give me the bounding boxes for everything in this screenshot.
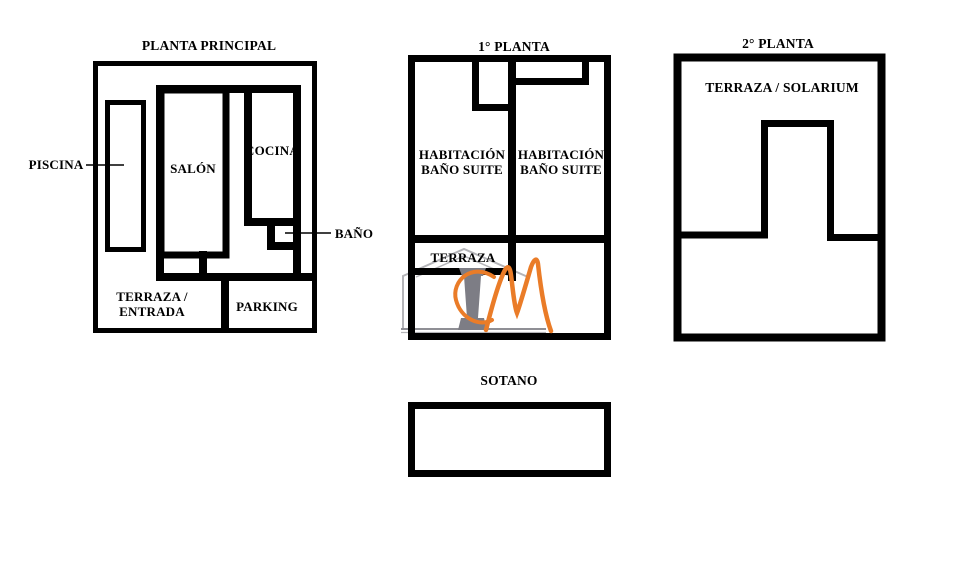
plan-title-primera-planta: 1° PLANTA bbox=[478, 39, 550, 54]
piscina-pool-outline bbox=[108, 103, 144, 250]
cocina-label: COCINA bbox=[245, 143, 299, 158]
plan-title-segunda-planta: 2° PLANTA bbox=[742, 36, 814, 51]
plan-segunda-planta: 2° PLANTA TERRAZA / SOLARIUM bbox=[674, 36, 886, 338]
piscina-label: PISCINA bbox=[29, 157, 84, 172]
parking-label: PARKING bbox=[236, 299, 298, 314]
habitacion-left-label-line1: HABITACIÓN bbox=[419, 147, 506, 162]
sotano-outer-wall bbox=[412, 406, 608, 474]
terraza-entrada-label-line2: ENTRADA bbox=[119, 304, 185, 319]
floor-plans-canvas: PLANTA PRINCIPAL PISCINA SALÓN COCINA BA… bbox=[0, 0, 954, 576]
habitacion-right-label-line2: BAÑO SUITE bbox=[520, 162, 602, 177]
habitacion-right-label-line1: HABITACIÓN bbox=[518, 147, 605, 162]
plan-title-planta-principal: PLANTA PRINCIPAL bbox=[142, 38, 276, 53]
segunda-planta-outer-wall bbox=[678, 58, 882, 338]
plan-sotano: SOTANO bbox=[412, 373, 608, 474]
bano-label: BAÑO bbox=[335, 226, 373, 241]
habitacion-left-label-line2: BAÑO SUITE bbox=[421, 162, 503, 177]
plan-planta-principal: PLANTA PRINCIPAL PISCINA SALÓN COCINA BA… bbox=[29, 38, 374, 331]
cm-logo-watermark bbox=[455, 260, 551, 331]
terraza-label: TERRAZA bbox=[431, 250, 496, 265]
salon-label: SALÓN bbox=[170, 161, 216, 176]
terraza-solarium-label: TERRAZA / SOLARIUM bbox=[705, 80, 859, 95]
plan-title-sotano: SOTANO bbox=[480, 373, 537, 388]
plan-primera-planta: 1° PLANTA HABITACIÓN BAÑO SUITE HABITACI… bbox=[408, 39, 611, 337]
terraza-entrada-label-line1: TERRAZA / bbox=[116, 289, 188, 304]
